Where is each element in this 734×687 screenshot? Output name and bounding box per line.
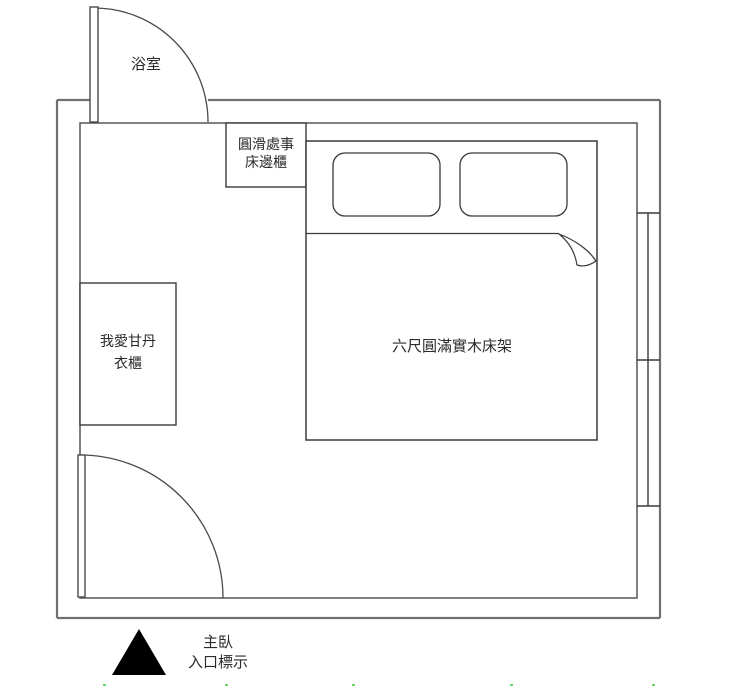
wardrobe-label-line1: 我愛甘丹 xyxy=(100,330,156,352)
entry-door-arc xyxy=(80,455,223,598)
entry-door xyxy=(78,455,223,598)
wardrobe-label-line2: 衣櫃 xyxy=(100,352,156,374)
floor-plan: 浴室 圓滑處事 床邊櫃 我愛甘丹 衣櫃 六尺圓滿實木床架 主臥 入口標示 xyxy=(0,0,734,687)
bedside-cabinet-label-line1: 圓滑處事 xyxy=(238,135,294,153)
window-right-wall xyxy=(637,213,660,506)
pillow-right xyxy=(460,153,567,216)
bathroom-door-leaf xyxy=(90,7,98,122)
bedside-cabinet-label-line2: 床邊櫃 xyxy=(238,153,294,171)
entrance-label-line2: 入口標示 xyxy=(188,653,248,673)
bathroom-label: 浴室 xyxy=(131,55,161,75)
entry-door-leaf xyxy=(78,455,85,597)
entrance-label: 主臥 入口標示 xyxy=(188,633,248,673)
wardrobe-label: 我愛甘丹 衣櫃 xyxy=(100,330,156,374)
entrance-marker-icon xyxy=(112,629,166,675)
bottom-edge-artifacts xyxy=(103,684,655,686)
bed-label: 六尺圓滿實木床架 xyxy=(392,337,512,357)
bedside-cabinet-label: 圓滑處事 床邊櫃 xyxy=(238,135,294,171)
pillow-left xyxy=(333,153,440,216)
entrance-label-line1: 主臥 xyxy=(188,633,248,653)
bed xyxy=(306,141,597,440)
